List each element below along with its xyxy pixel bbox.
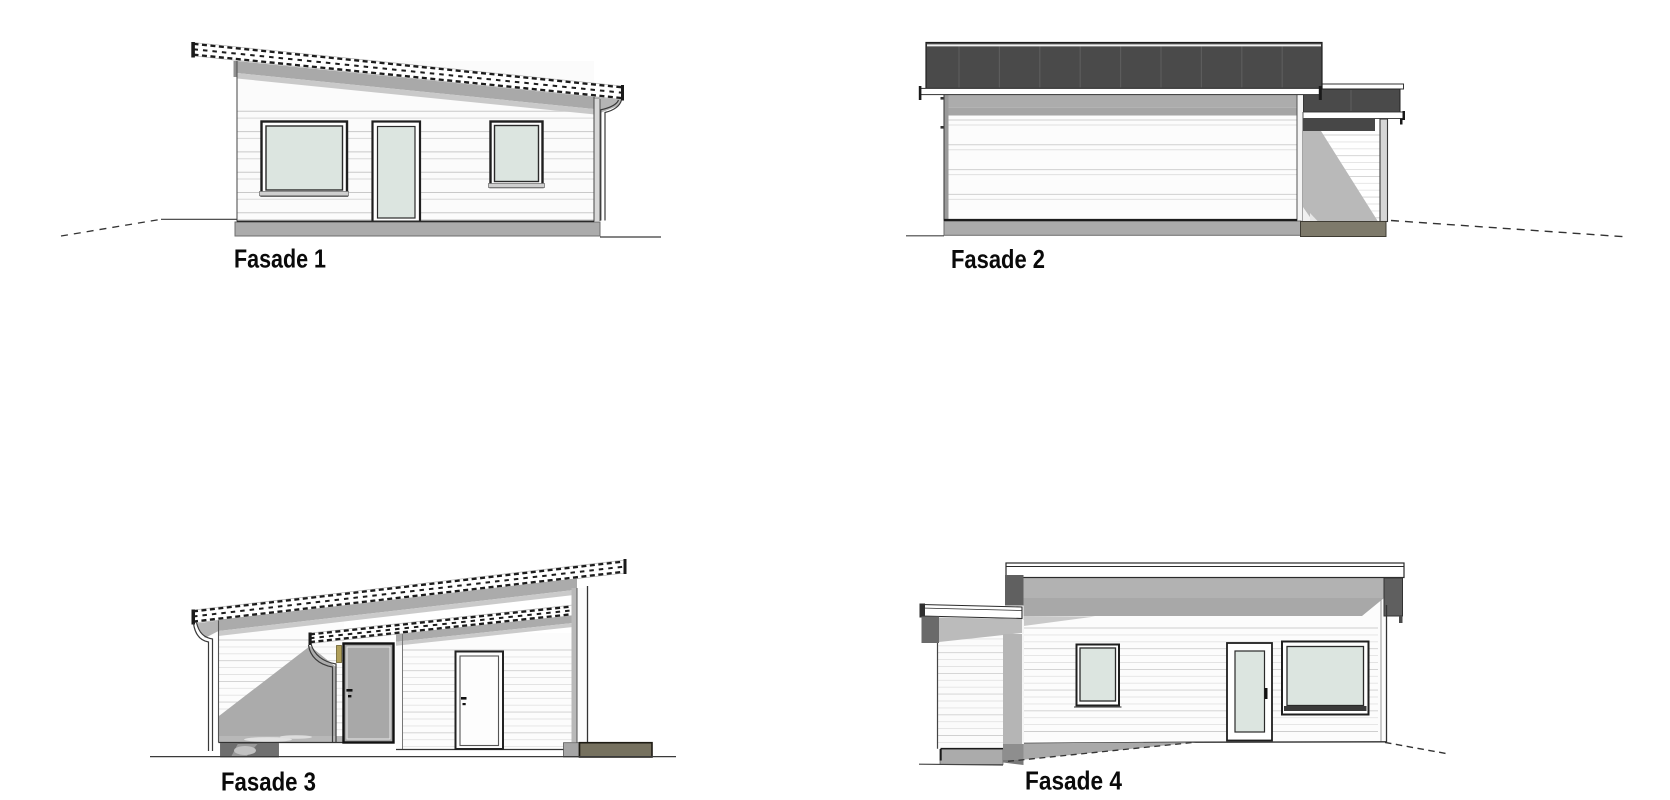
svg-text:Fasade 2: Fasade 2 bbox=[951, 244, 1045, 274]
svg-text:Fasade 3: Fasade 3 bbox=[221, 767, 316, 797]
svg-text:Fasade 1: Fasade 1 bbox=[234, 244, 326, 274]
svg-text:Fasade 4: Fasade 4 bbox=[1025, 766, 1122, 796]
